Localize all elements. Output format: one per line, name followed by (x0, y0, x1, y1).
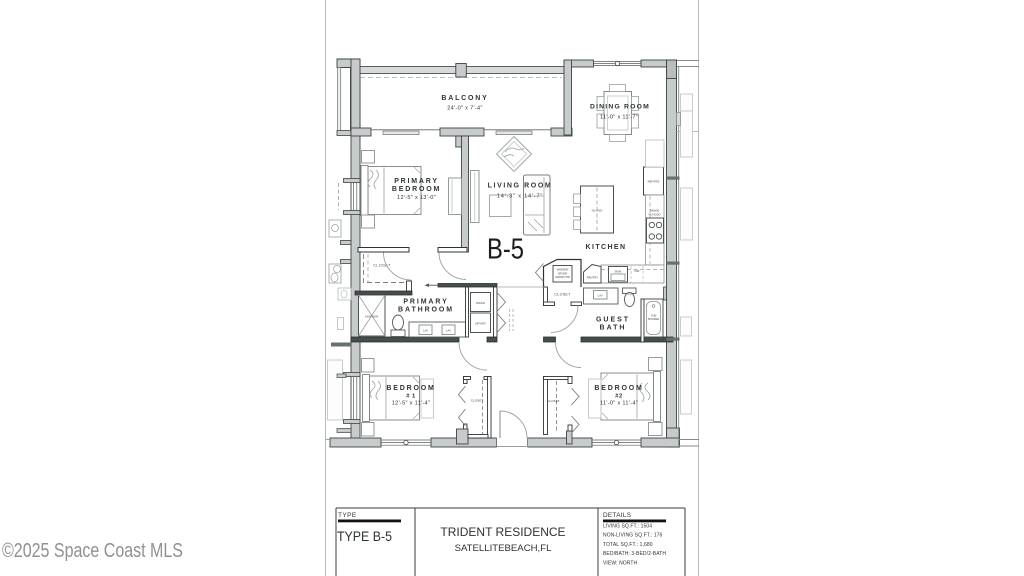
svg-text:SHOWER: SHOWER (648, 318, 659, 321)
svg-text:PRIMARY: PRIMARY (403, 299, 448, 306)
svg-text:PRIMARY: PRIMARY (394, 178, 439, 185)
svg-text:DRYER/: DRYER/ (558, 272, 568, 275)
svg-text:DW: DW (635, 269, 640, 273)
svg-text:WATER HTR: WATER HTR (555, 276, 570, 279)
svg-text:TYPE B-5: TYPE B-5 (337, 529, 392, 544)
svg-text:TOILET: TOILET (626, 294, 634, 296)
svg-text:SHOWER: SHOWER (365, 315, 379, 319)
svg-text:SINK: SINK (614, 270, 621, 274)
svg-text:# 1: # 1 (406, 394, 416, 400)
svg-text:BATH: BATH (600, 325, 627, 332)
svg-text:WASH: WASH (476, 301, 485, 305)
svg-text:12'-5" x 13'-0": 12'-5" x 13'-0" (397, 195, 436, 201)
svg-text:12'-5" x 11'-4": 12'-5" x 11'-4" (392, 401, 431, 407)
svg-text:BEDROOM: BEDROOM (392, 186, 441, 193)
svg-text:BATHROOM: BATHROOM (398, 307, 454, 314)
svg-text:DETAILS: DETAILS (603, 512, 631, 519)
svg-text:14'-3" x 14'-7": 14'-3" x 14'-7" (497, 194, 543, 200)
svg-text:BED/BATH: 3-BED/2-BATH: BED/BATH: 3-BED/2-BATH (603, 551, 666, 557)
svg-text:B-5: B-5 (487, 234, 524, 266)
svg-text:REF/FRZ: REF/FRZ (648, 180, 660, 184)
svg-text:11'-0" x 11'-7": 11'-0" x 11'-7" (600, 115, 638, 121)
svg-text:LAV: LAV (423, 329, 428, 333)
svg-text:WASHER/: WASHER/ (557, 269, 569, 272)
svg-text:W/ HOOD: W/ HOOD (649, 212, 661, 216)
svg-text:#2: #2 (615, 394, 622, 400)
svg-text:LAV: LAV (446, 329, 451, 333)
svg-text:GUEST: GUEST (596, 317, 630, 324)
svg-text:RANGE: RANGE (650, 209, 659, 213)
svg-text:LIVING SQ.FT.: 1504: LIVING SQ.FT.: 1504 (603, 524, 652, 530)
svg-text:NON-LIVING SQ.FT.: 176: NON-LIVING SQ.FT.: 176 (603, 533, 663, 539)
svg-text:11'-0" x 11'-4": 11'-0" x 11'-4" (600, 401, 638, 407)
svg-text:CLOSET: CLOSET (554, 293, 571, 297)
svg-text:VIEW: NORTH: VIEW: NORTH (603, 560, 638, 566)
svg-text:DINING ROOM: DINING ROOM (590, 104, 650, 111)
svg-text:DRYER: DRYER (475, 322, 486, 326)
svg-text:SATELLITEBEACH,FL: SATELLITEBEACH,FL (455, 543, 553, 554)
svg-text:CLOSET: CLOSET (373, 263, 391, 268)
svg-text:KITCHEN: KITCHEN (586, 244, 627, 251)
svg-text:PANTRY: PANTRY (587, 276, 599, 280)
svg-text:CLOSET: CLOSET (547, 399, 559, 403)
svg-text:BEDROOM: BEDROOM (594, 385, 643, 392)
svg-text:TYPE: TYPE (338, 512, 357, 519)
svg-text:LAV: LAV (598, 294, 603, 298)
svg-text:TOTAL SQ.FT.: 1,680: TOTAL SQ.FT.: 1,680 (603, 542, 653, 548)
svg-text:TRIDENT RESIDENCE: TRIDENT RESIDENCE (440, 525, 565, 539)
svg-text:CLOSET: CLOSET (471, 399, 483, 403)
svg-text:LIVING ROOM: LIVING ROOM (488, 183, 553, 190)
svg-text:BEDROOM: BEDROOM (386, 385, 435, 392)
svg-text:ISLAND: ISLAND (592, 209, 604, 213)
svg-text:©2025 Space Coast MLS: ©2025 Space Coast MLS (2, 539, 183, 562)
svg-text:24'-0" x 7'-4": 24'-0" x 7'-4" (447, 106, 483, 112)
svg-text:BALCONY: BALCONY (441, 95, 488, 102)
